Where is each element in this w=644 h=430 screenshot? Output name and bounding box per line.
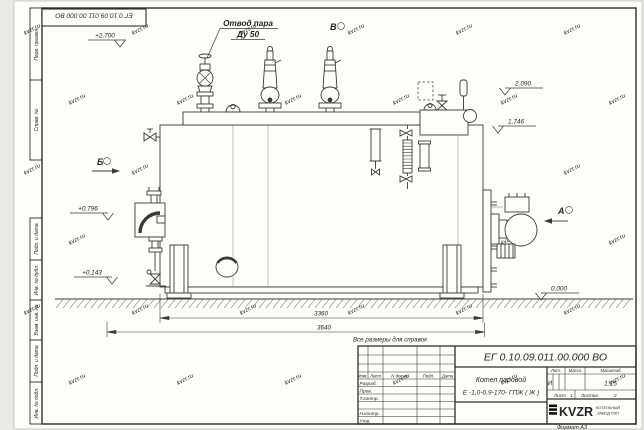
row-tkontr: Т.контр. <box>360 396 379 402</box>
margin-cell-perv-primen: Перв. примен. <box>34 27 40 60</box>
view-b-letter: Б <box>97 157 104 167</box>
view-v-letter: В <box>330 22 337 32</box>
boiler-shell <box>160 125 483 287</box>
drum-right-box <box>420 110 468 135</box>
row-razrab: Разраб. <box>360 381 377 387</box>
pump-ribs <box>497 244 515 258</box>
pump-gearbox <box>505 197 529 212</box>
margin-cell-sprav-no: Справ. № <box>34 108 40 131</box>
elevation-2090: 2,090 <box>514 81 531 88</box>
scale-value: 1:15 <box>604 381 617 388</box>
base-pad-left <box>167 293 191 298</box>
col-izm: Изм. <box>358 374 367 379</box>
company-line1: КОТЕЛЬНЫЙ <box>596 406 620 410</box>
logo-text: KVZR <box>559 405 593 419</box>
skid-frame <box>165 287 478 293</box>
elevation-0000: 0,000 <box>551 286 567 293</box>
col-doc: N докум. <box>391 374 408 379</box>
base-pad-right <box>440 293 464 298</box>
doc-number: ЕГ 0.10.09.011.00.000 ВО <box>484 352 607 364</box>
lit-value: И <box>548 381 553 387</box>
elevation-0796: +0,796 <box>78 206 98 213</box>
margin-cell-vzam-inv: Взам. инв. № <box>34 304 40 336</box>
callout-line1: Отвод пара <box>223 19 273 28</box>
format-note: Формат А3 <box>557 425 588 430</box>
support-leg-right <box>443 245 461 293</box>
mass-label: Масса <box>569 368 582 373</box>
margin-cell-inv-dubl: Инв. № дубл. <box>34 265 40 296</box>
dim-3640: 3640 <box>317 325 332 332</box>
row-nkontr: Н.контр. <box>360 411 380 417</box>
sheet-value: 1 <box>570 393 573 398</box>
product-name-line2: Е -1,0-0,9-170- ГПЖ ( Ж ) <box>463 390 540 397</box>
product-name-line1: Котел паровой <box>476 376 526 384</box>
col-data: Дата <box>441 374 454 379</box>
margin-cell-inv-podl: Инв. № подл. <box>34 387 40 418</box>
reference-note: Все размеры для справок <box>353 337 428 344</box>
scale-label: Масштаб <box>600 368 621 373</box>
drum-platform <box>183 112 420 125</box>
elevation-1746: 1,746 <box>508 119 524 126</box>
sheets-value: 2 <box>613 393 617 398</box>
elevation-2700: +2,700 <box>95 33 115 40</box>
sheet-label: Лист <box>553 393 566 398</box>
company-line2: ЗАВОД РЭП <box>597 412 619 416</box>
boiler-drawing-sheet: kvzr.rukvzr.rukvzr.rukvzr.rukvzr.rukvzr.… <box>0 0 644 430</box>
col-podp: Подп. <box>423 374 434 379</box>
row-prov: Пров. <box>360 388 373 394</box>
sheets-label: Листов <box>580 393 598 398</box>
support-leg-left <box>170 245 188 293</box>
row-utv: Утв. <box>360 418 371 424</box>
top-stamp-text: ЕГ 0.10.09.011.00.000 ВО <box>55 12 132 19</box>
margin-cell-podp-data-2: Подп. и дата <box>34 345 40 377</box>
callout-line2: Ду 50 <box>236 30 259 39</box>
lit-label: Лит. <box>550 368 561 373</box>
drawing-canvas: kvzr.rukvzr.rukvzr.rukvzr.rukvzr.rukvzr.… <box>0 0 644 430</box>
col-list: Лист <box>369 374 381 379</box>
siphon-loop <box>464 110 477 123</box>
margin-cell-podp-data-1: Подп. и дата <box>34 223 40 255</box>
view-a-letter: А <box>557 206 565 216</box>
elevation-0143: +0,143 <box>82 270 102 277</box>
dim-3360: 3360 <box>314 311 329 318</box>
